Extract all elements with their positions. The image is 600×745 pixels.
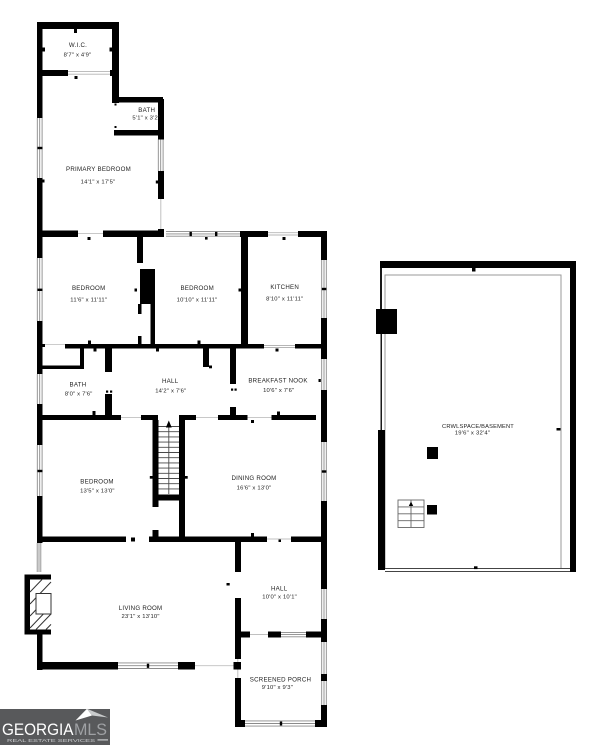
svg-text:REAL ESTATE SERVICES: REAL ESTATE SERVICES — [7, 738, 95, 743]
svg-text:KITCHEN: KITCHEN — [270, 284, 299, 291]
svg-text:13'5" x 13'0": 13'5" x 13'0" — [80, 489, 115, 495]
svg-text:DINING ROOM: DINING ROOM — [231, 475, 276, 482]
svg-text:14'1" x 17'5": 14'1" x 17'5" — [81, 180, 116, 186]
svg-text:10'10" x 11'11": 10'10" x 11'11" — [177, 298, 218, 304]
svg-text:8'7" x 4'9": 8'7" x 4'9" — [64, 53, 92, 59]
svg-text:23'1" x 13'10": 23'1" x 13'10" — [122, 614, 160, 620]
svg-text:GEORGIA: GEORGIA — [2, 721, 74, 739]
svg-text:CRWLSPACE/BASEMENT: CRWLSPACE/BASEMENT — [442, 424, 514, 430]
svg-text:5'1" x 3'2": 5'1" x 3'2" — [132, 116, 160, 122]
svg-text:BEDROOM: BEDROOM — [72, 285, 105, 292]
svg-text:HALL: HALL — [162, 378, 179, 385]
svg-text:8'0" x 7'6": 8'0" x 7'6" — [65, 392, 93, 398]
svg-text:14'2" x 7'6": 14'2" x 7'6" — [155, 389, 186, 395]
svg-text:BEDROOM: BEDROOM — [180, 285, 213, 292]
svg-text:W.I.C.: W.I.C. — [69, 42, 87, 49]
svg-text:BREAKFAST NOOK: BREAKFAST NOOK — [248, 378, 308, 385]
svg-text:LIVING ROOM: LIVING ROOM — [119, 605, 163, 612]
svg-text:PRIMARY BEDROOM: PRIMARY BEDROOM — [66, 166, 131, 173]
svg-text:8'10" x 11'11": 8'10" x 11'11" — [266, 297, 303, 303]
svg-text:BATH: BATH — [138, 107, 155, 114]
svg-text:10'6" x 7'6": 10'6" x 7'6" — [263, 388, 294, 394]
svg-text:9'10" x 9'3": 9'10" x 9'3" — [262, 685, 293, 691]
svg-text:BEDROOM: BEDROOM — [80, 479, 113, 486]
svg-text:19'6" x 32'4": 19'6" x 32'4" — [455, 430, 491, 436]
svg-text:BATH: BATH — [70, 382, 87, 389]
svg-text:MLS: MLS — [74, 721, 107, 739]
svg-text:11'6" x 11'11": 11'6" x 11'11" — [70, 298, 107, 304]
svg-text:SCREENED PORCH: SCREENED PORCH — [250, 677, 312, 684]
svg-text:10'0" x 10'1": 10'0" x 10'1" — [262, 595, 297, 601]
svg-text:HALL: HALL — [271, 586, 288, 593]
svg-text:16'6" x 13'0": 16'6" x 13'0" — [237, 486, 272, 492]
